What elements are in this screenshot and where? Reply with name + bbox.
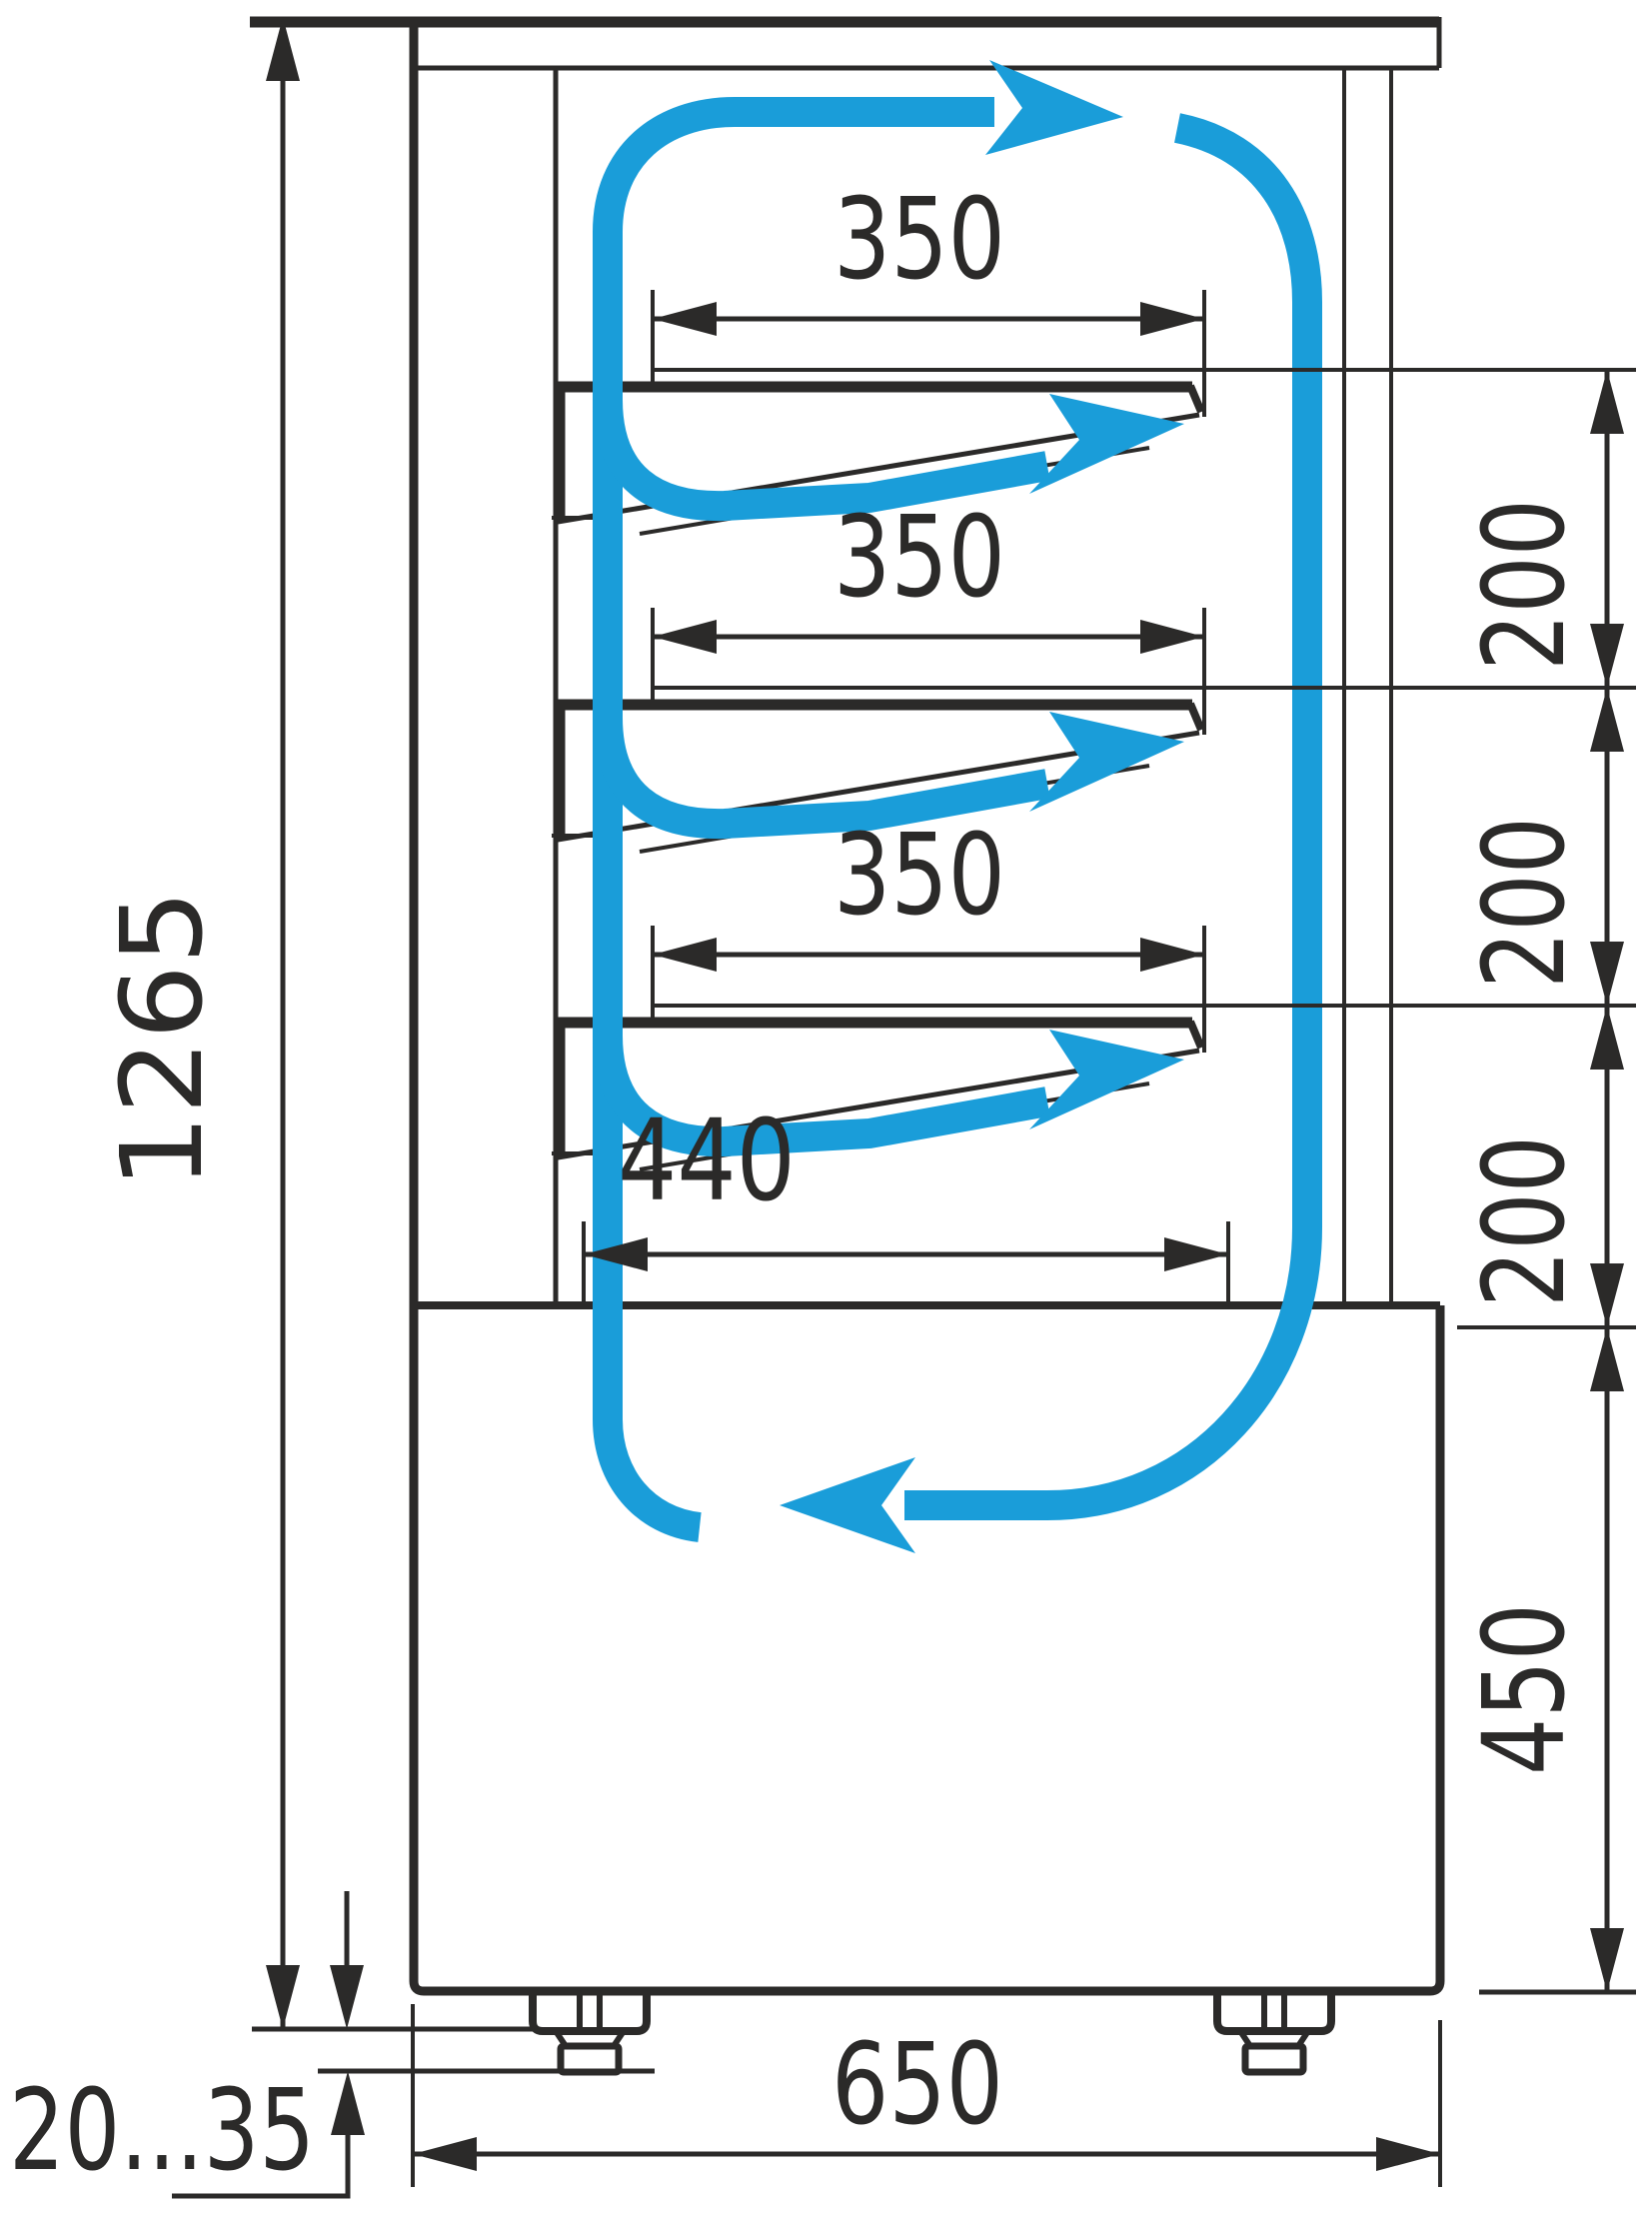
shelf-1-front-lip <box>1190 386 1201 412</box>
arrow-right-icon <box>1376 2137 1440 2171</box>
right-foot-pad <box>1245 2046 1303 2072</box>
dim-label-spacing-3: 200 <box>1460 1135 1590 1307</box>
left-foot-pad <box>561 2046 619 2072</box>
arrow-up-icon <box>331 2071 365 2135</box>
display-case-diagram: 350 350 350 440 650 1265 200 200 200 450… <box>0 0 1652 2214</box>
arrow-left-icon <box>653 302 717 336</box>
right-foot-shaft <box>1264 1991 1284 2031</box>
diagram-page: 350 350 350 440 650 1265 200 200 200 450… <box>0 0 1652 2214</box>
arrow-right-icon <box>1164 1237 1228 1271</box>
arrow-up-icon <box>1590 1327 1624 1391</box>
airflow-shelf-1-arrowhead-icon <box>1029 394 1184 494</box>
dim-label-spacing-1: 200 <box>1460 499 1590 671</box>
arrow-left-icon <box>653 620 717 654</box>
left-foot-shaft <box>580 1991 600 2031</box>
dim-label-deck-depth: 440 <box>618 1097 796 1226</box>
dim-label-spacing-2: 200 <box>1460 817 1590 989</box>
arrow-right-icon <box>1140 938 1204 972</box>
arrow-up-icon <box>1590 688 1624 752</box>
shelf-2-front-lip <box>1190 704 1201 730</box>
arrow-down-icon <box>1590 624 1624 688</box>
arrow-down-icon <box>330 1965 364 2029</box>
dim-label-shelf3-depth: 350 <box>833 811 1005 941</box>
dim-label-overall-depth: 650 <box>831 2020 1003 2150</box>
dim-label-shelf1-depth: 350 <box>833 175 1005 305</box>
arrow-up-icon <box>1590 1006 1624 1070</box>
airflow-top-arrowhead-icon <box>985 60 1123 155</box>
dim-label-overall-height: 1265 <box>98 890 228 1189</box>
arrow-down-icon <box>1590 942 1624 1006</box>
dim-label-foot-adjustment: 20...35 <box>9 2066 315 2196</box>
arrow-up-icon <box>1590 370 1624 434</box>
left-foot-bracket <box>533 1991 647 2031</box>
arrow-left-icon <box>653 938 717 972</box>
dimension-labels: 350 350 350 440 650 1265 200 200 200 450… <box>9 175 1590 2196</box>
airflow-shelf-3-arrowhead-icon <box>1029 1030 1184 1129</box>
dim-label-base-height: 450 <box>1460 1603 1590 1775</box>
arrow-right-icon <box>1140 302 1204 336</box>
dim-label-shelf2-depth: 350 <box>833 493 1005 623</box>
arrow-down-icon <box>1590 1928 1624 1992</box>
shelf-3-front-lip <box>1190 1022 1201 1048</box>
arrow-left-icon <box>413 2137 477 2171</box>
right-foot <box>1217 1991 1331 2072</box>
arrow-down-icon <box>1590 1263 1624 1327</box>
arrow-down-icon <box>266 1965 300 2029</box>
dimension-lines <box>172 17 1636 2196</box>
airflow-return-arrowhead-icon <box>780 1457 915 1553</box>
cabinet-structure <box>250 17 1440 2072</box>
left-foot <box>533 1991 647 2072</box>
airflow-shelf-2-arrowhead-icon <box>1029 712 1184 812</box>
right-foot-bracket <box>1217 1991 1331 2031</box>
arrow-right-icon <box>1140 620 1204 654</box>
